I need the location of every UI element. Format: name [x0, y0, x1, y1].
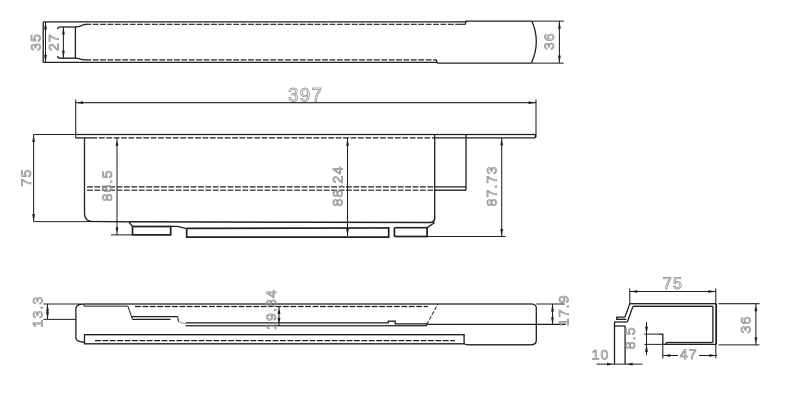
svg-text:88.24: 88.24 — [330, 165, 346, 206]
svg-text:87.73: 87.73 — [485, 165, 501, 206]
svg-text:19.84: 19.84 — [264, 289, 280, 330]
svg-text:17.9: 17.9 — [556, 294, 572, 326]
svg-text:47: 47 — [680, 347, 698, 363]
svg-text:86.5: 86.5 — [100, 169, 116, 201]
svg-text:397: 397 — [288, 85, 323, 106]
svg-text:10: 10 — [592, 347, 610, 363]
svg-text:36: 36 — [739, 316, 755, 334]
svg-text:75: 75 — [19, 169, 35, 187]
svg-text:8.5: 8.5 — [623, 326, 639, 349]
svg-text:35: 35 — [29, 33, 45, 51]
svg-text:27: 27 — [47, 33, 63, 51]
svg-text:75: 75 — [663, 275, 684, 293]
svg-text:13.3: 13.3 — [30, 296, 46, 328]
svg-text:36: 36 — [542, 32, 558, 50]
